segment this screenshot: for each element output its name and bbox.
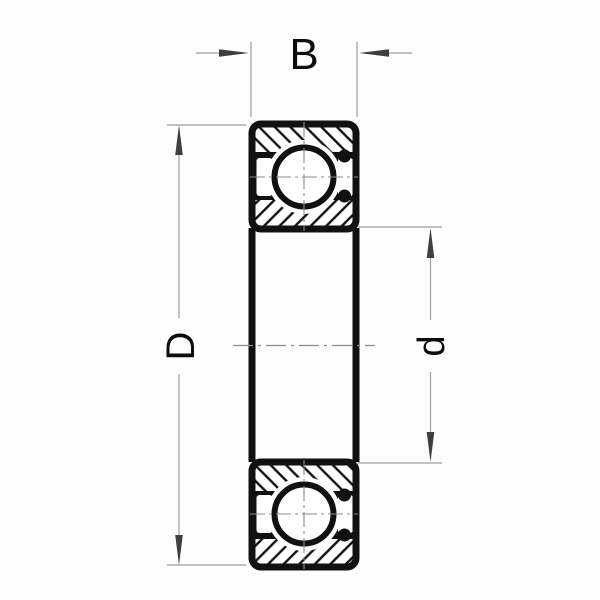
- dim-label-width-B: B: [289, 30, 318, 79]
- b-arrowhead-left: [219, 49, 249, 57]
- seal-rivet-top-upper: [338, 150, 351, 163]
- dim-label-bore-diameter-d: d: [411, 335, 453, 356]
- d-outer-arrowhead-down: [175, 535, 183, 565]
- seal-rivet-top-lower: [338, 190, 351, 203]
- b-arrowhead-right: [359, 49, 389, 57]
- d-outer-arrowhead-up: [175, 125, 183, 155]
- seal-rivet-bottom-lower: [338, 529, 351, 542]
- d-bore-arrowhead-down: [427, 432, 435, 462]
- d-bore-arrowhead-up: [427, 228, 435, 258]
- bearing-section-bottom: [248, 459, 360, 571]
- bearing-technical-drawing: B D d: [0, 0, 600, 600]
- drawing-canvas: B D d: [0, 0, 600, 600]
- bearing-section-top: [248, 120, 360, 232]
- seal-rivet-bottom-upper: [338, 489, 351, 502]
- dim-label-outer-diameter-D: D: [159, 332, 203, 361]
